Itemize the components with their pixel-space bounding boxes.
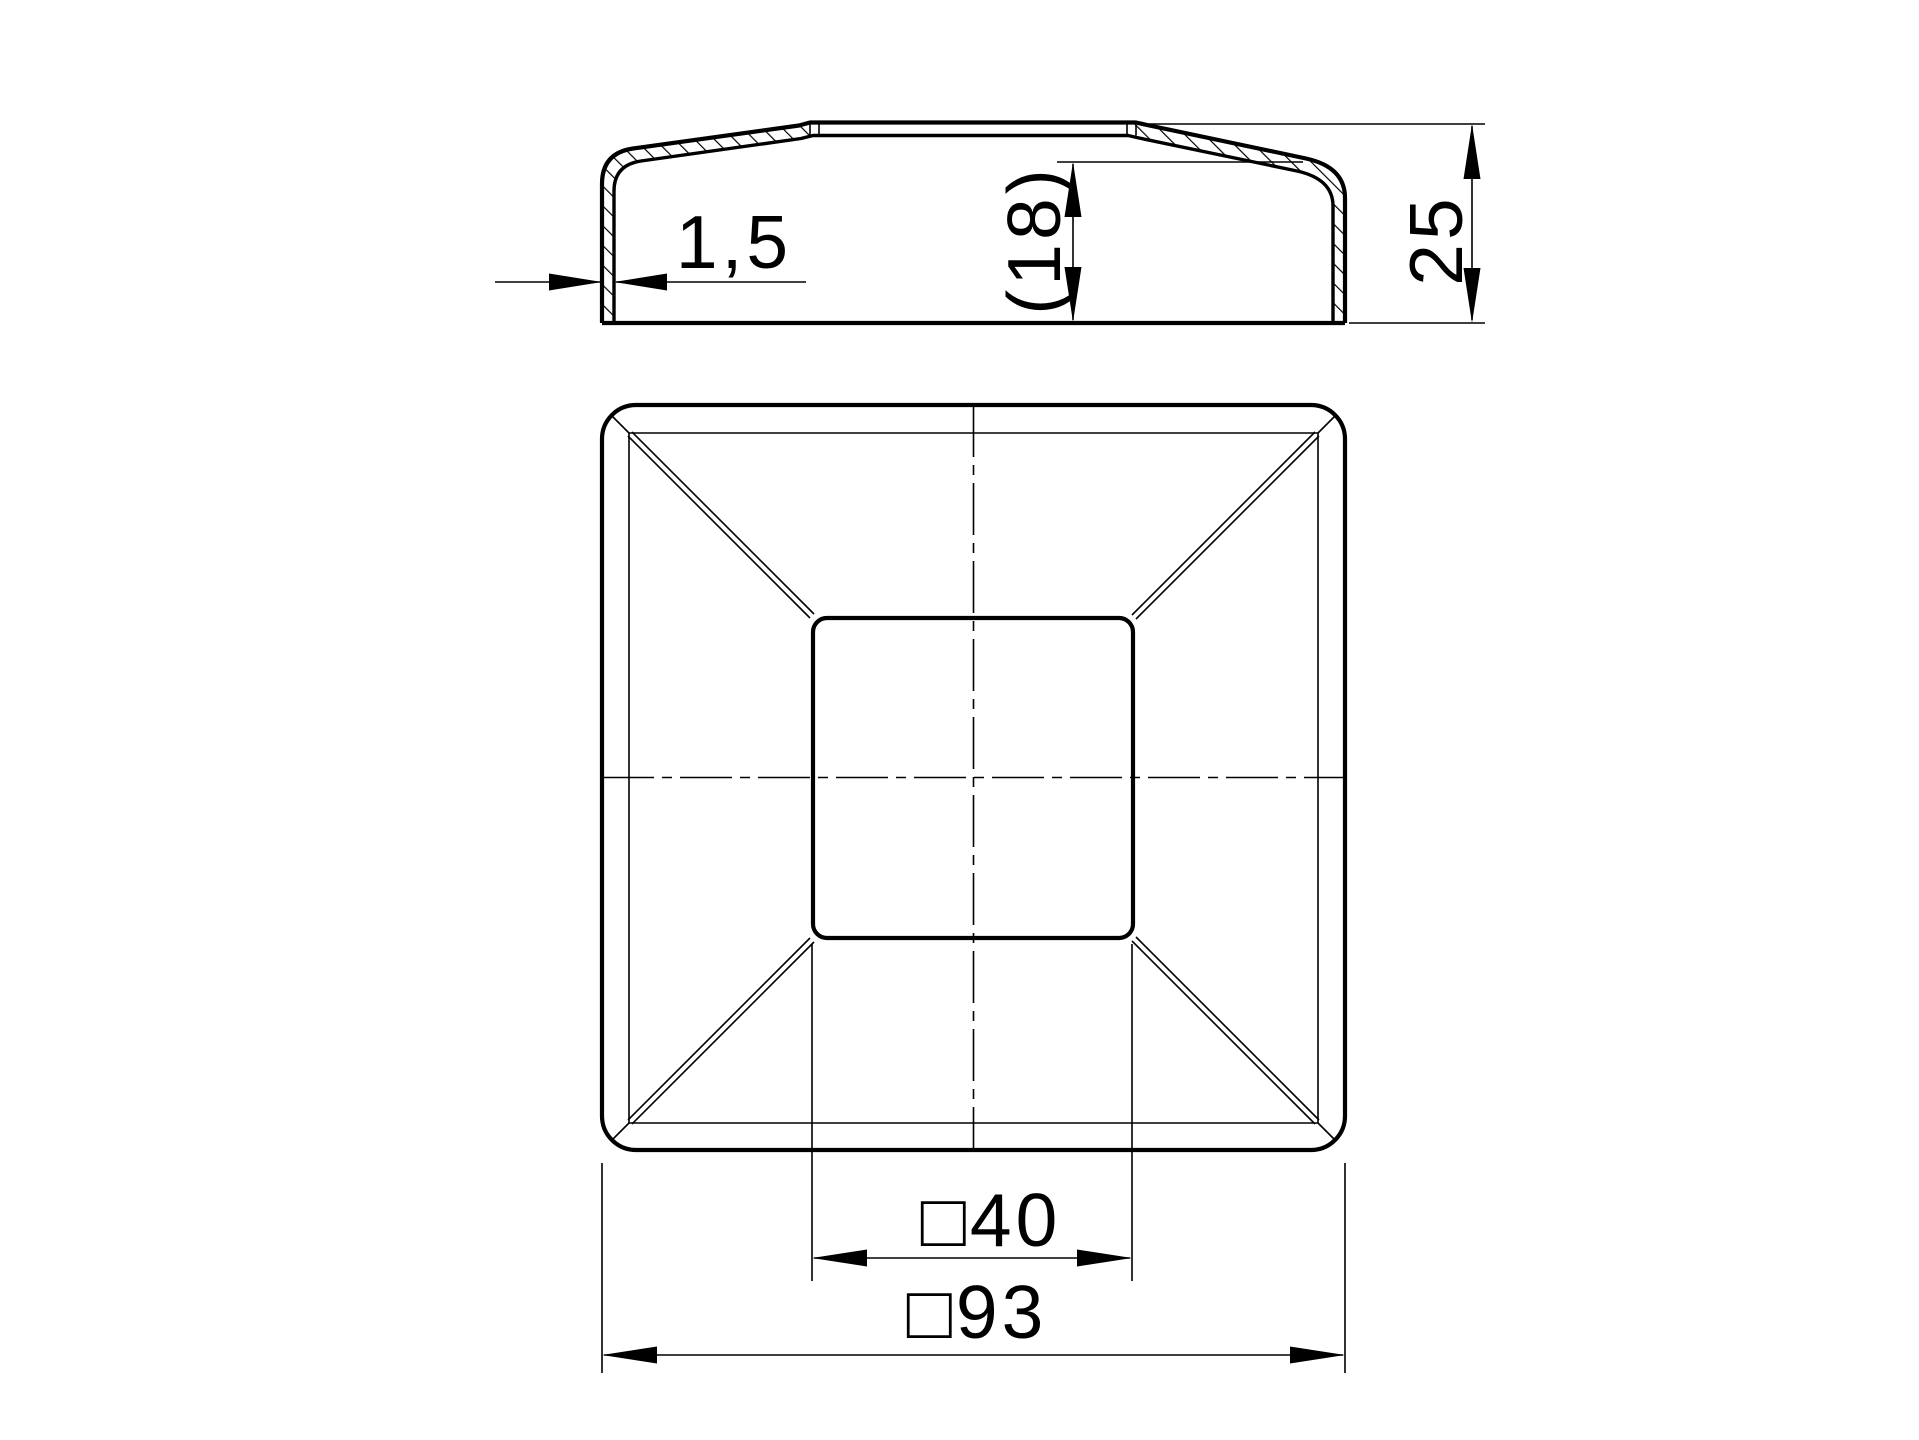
dimension-wall-thickness: 1,5 xyxy=(495,200,806,291)
dim-label-total-height: 25 xyxy=(1394,194,1478,285)
dimension-cavity-depth: (18) xyxy=(992,162,1303,322)
dim-40-arrow-right xyxy=(1077,1250,1132,1267)
drawing-page: 1,5 (18) 25 xyxy=(0,0,1919,1440)
section-view: 1,5 (18) 25 xyxy=(495,123,1485,324)
section-hatch-right xyxy=(1128,123,1345,324)
technical-drawing-canvas: 1,5 (18) 25 xyxy=(0,0,1919,1440)
plan-view: □40 □93 xyxy=(602,405,1345,1373)
dim-1-5-arrow-right xyxy=(614,274,667,291)
dimension-inner-square: □40 xyxy=(812,944,1132,1281)
dimension-total-height: 25 xyxy=(1140,124,1485,323)
dim-label-wall-thickness: 1,5 xyxy=(676,200,792,284)
dim-label-inner-square: □40 xyxy=(921,1178,1062,1262)
dim-label-outer-square: □93 xyxy=(907,1270,1048,1354)
dim-25-arrow-top xyxy=(1464,124,1481,179)
dim-1-5-arrow-left xyxy=(549,274,602,291)
dim-label-cavity-depth: (18) xyxy=(992,165,1076,314)
dim-93-arrow-left xyxy=(602,1347,657,1364)
dim-40-arrow-left xyxy=(812,1250,867,1267)
dim-93-arrow-right xyxy=(1290,1347,1345,1364)
